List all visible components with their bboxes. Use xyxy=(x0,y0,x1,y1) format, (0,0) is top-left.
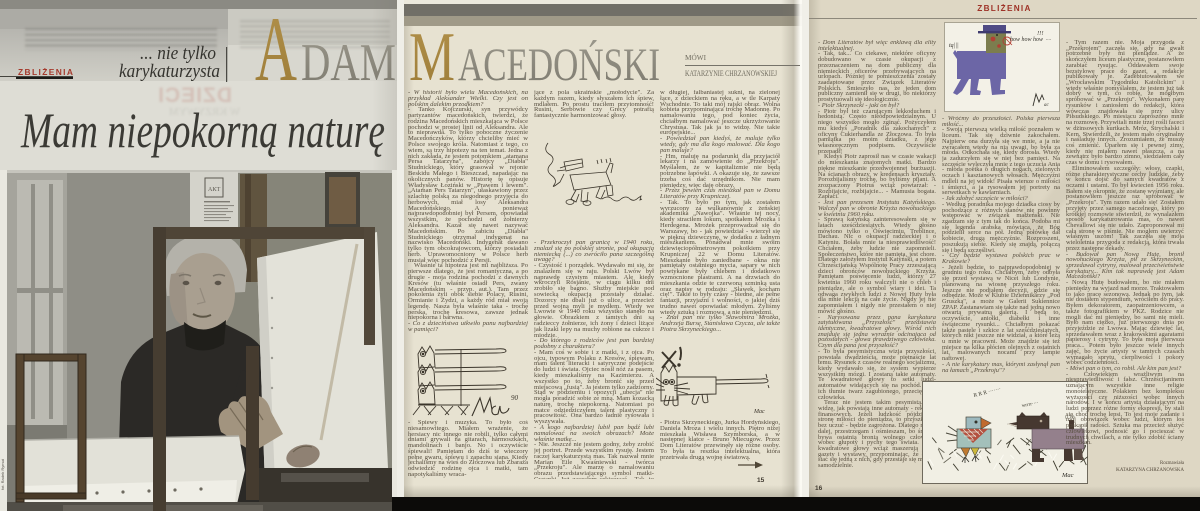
svg-text:M: M xyxy=(409,19,455,95)
svg-text:ac: ac xyxy=(1044,103,1050,108)
svg-text:DAM: DAM xyxy=(301,34,396,92)
svg-text:Mam niepokorną naturę: Mam niepokorną naturę xyxy=(20,102,385,158)
svg-text:....: .... xyxy=(1046,37,1051,42)
svg-text:how how how: how how how xyxy=(1010,37,1043,43)
svg-text:90: 90 xyxy=(511,394,519,402)
svg-text:!!!: !!! xyxy=(1037,30,1044,37)
svg-text:AKT: AKT xyxy=(208,187,221,193)
svg-text:Mac: Mac xyxy=(753,409,765,415)
svg-text:MÓWI: MÓWI xyxy=(685,52,706,62)
svg-text:tą|||: tą||| xyxy=(949,43,959,49)
svg-text:A: A xyxy=(255,0,297,95)
svg-text:ACEDOŃSKI: ACEDOŃSKI xyxy=(458,39,660,91)
svg-text:KATARZYNIE CHRZANOWSKIEJ: KATARZYNIE CHRZANOWSKIEJ xyxy=(685,69,777,78)
